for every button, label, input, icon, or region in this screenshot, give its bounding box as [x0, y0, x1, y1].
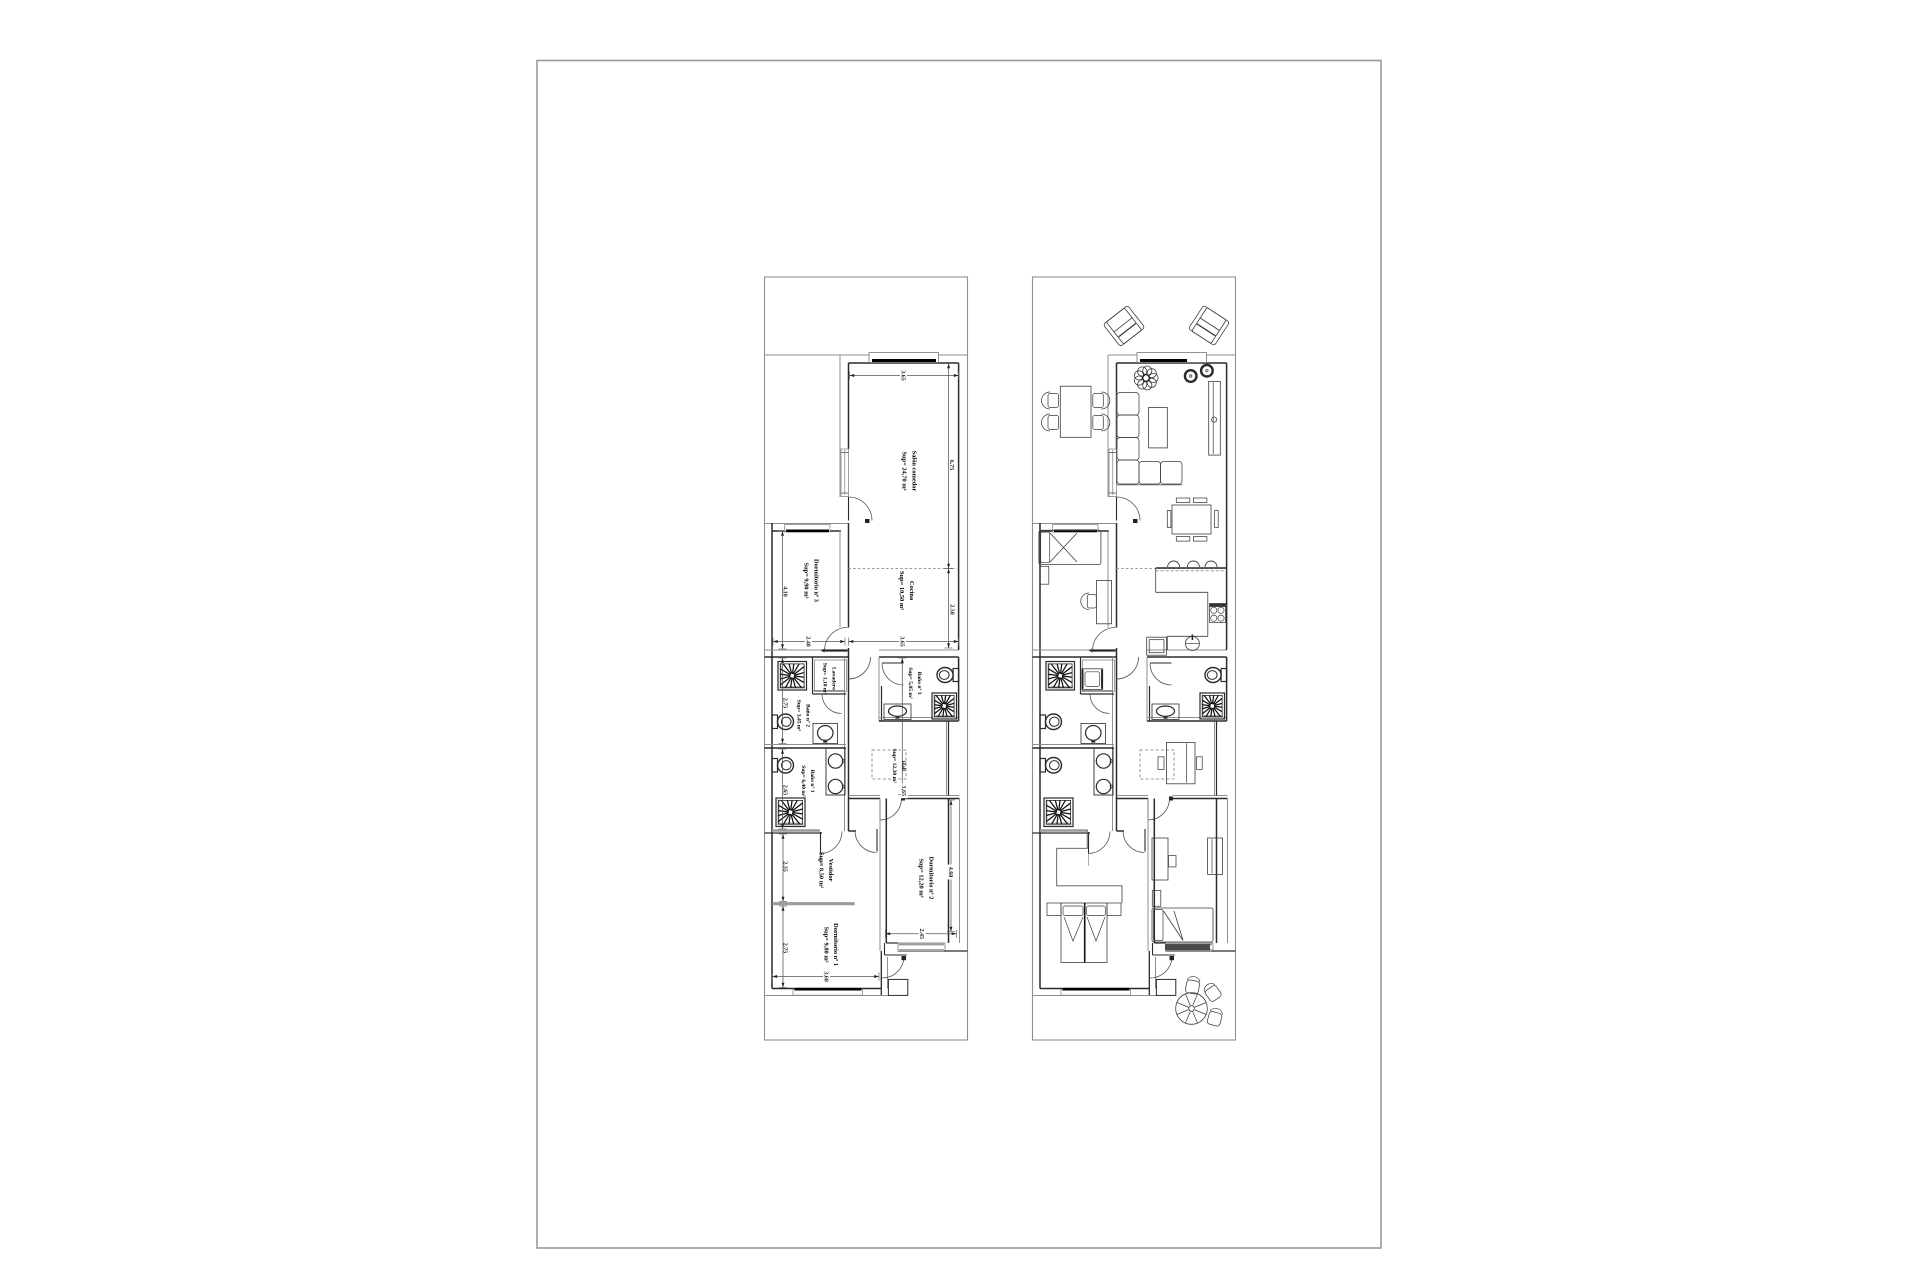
svg-text:4.10: 4.10 — [782, 586, 788, 597]
svg-text:3,60: 3,60 — [822, 971, 828, 982]
svg-text:3.65: 3.65 — [899, 370, 905, 381]
svg-text:2.75: 2.75 — [782, 943, 788, 954]
svg-text:6.75: 6.75 — [948, 460, 954, 471]
svg-text:2.40: 2.40 — [804, 636, 810, 647]
svg-text:3,65: 3,65 — [900, 786, 906, 797]
svg-text:2.45: 2.45 — [918, 928, 924, 939]
svg-text:2.35: 2.35 — [782, 861, 788, 872]
svg-text:2.50: 2.50 — [948, 604, 954, 615]
svg-text:2.65: 2.65 — [782, 785, 788, 796]
svg-text:4.60: 4.60 — [947, 867, 953, 878]
svg-text:2.75: 2.75 — [782, 698, 788, 709]
svg-text:3.65: 3.65 — [898, 636, 904, 647]
